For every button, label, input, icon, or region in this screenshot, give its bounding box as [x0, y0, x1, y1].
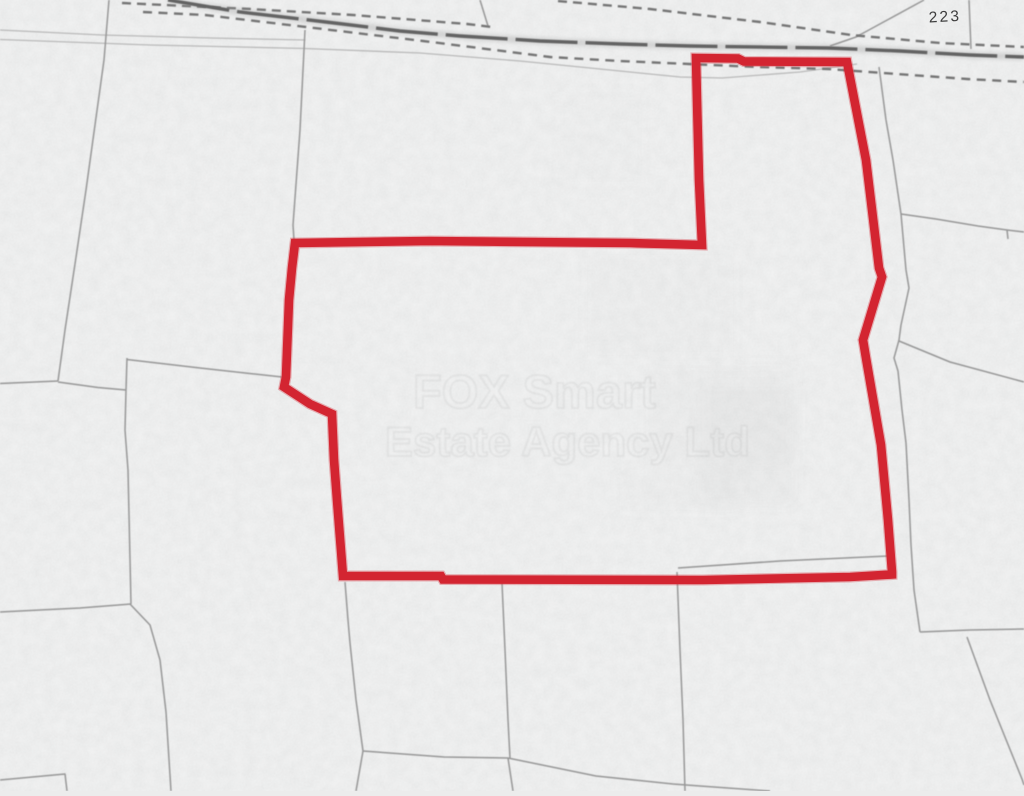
svg-text:Estate Agency Ltd: Estate Agency Ltd: [385, 418, 750, 465]
svg-text:FOX Smart: FOX Smart: [413, 365, 656, 418]
svg-text:223: 223: [928, 8, 961, 27]
